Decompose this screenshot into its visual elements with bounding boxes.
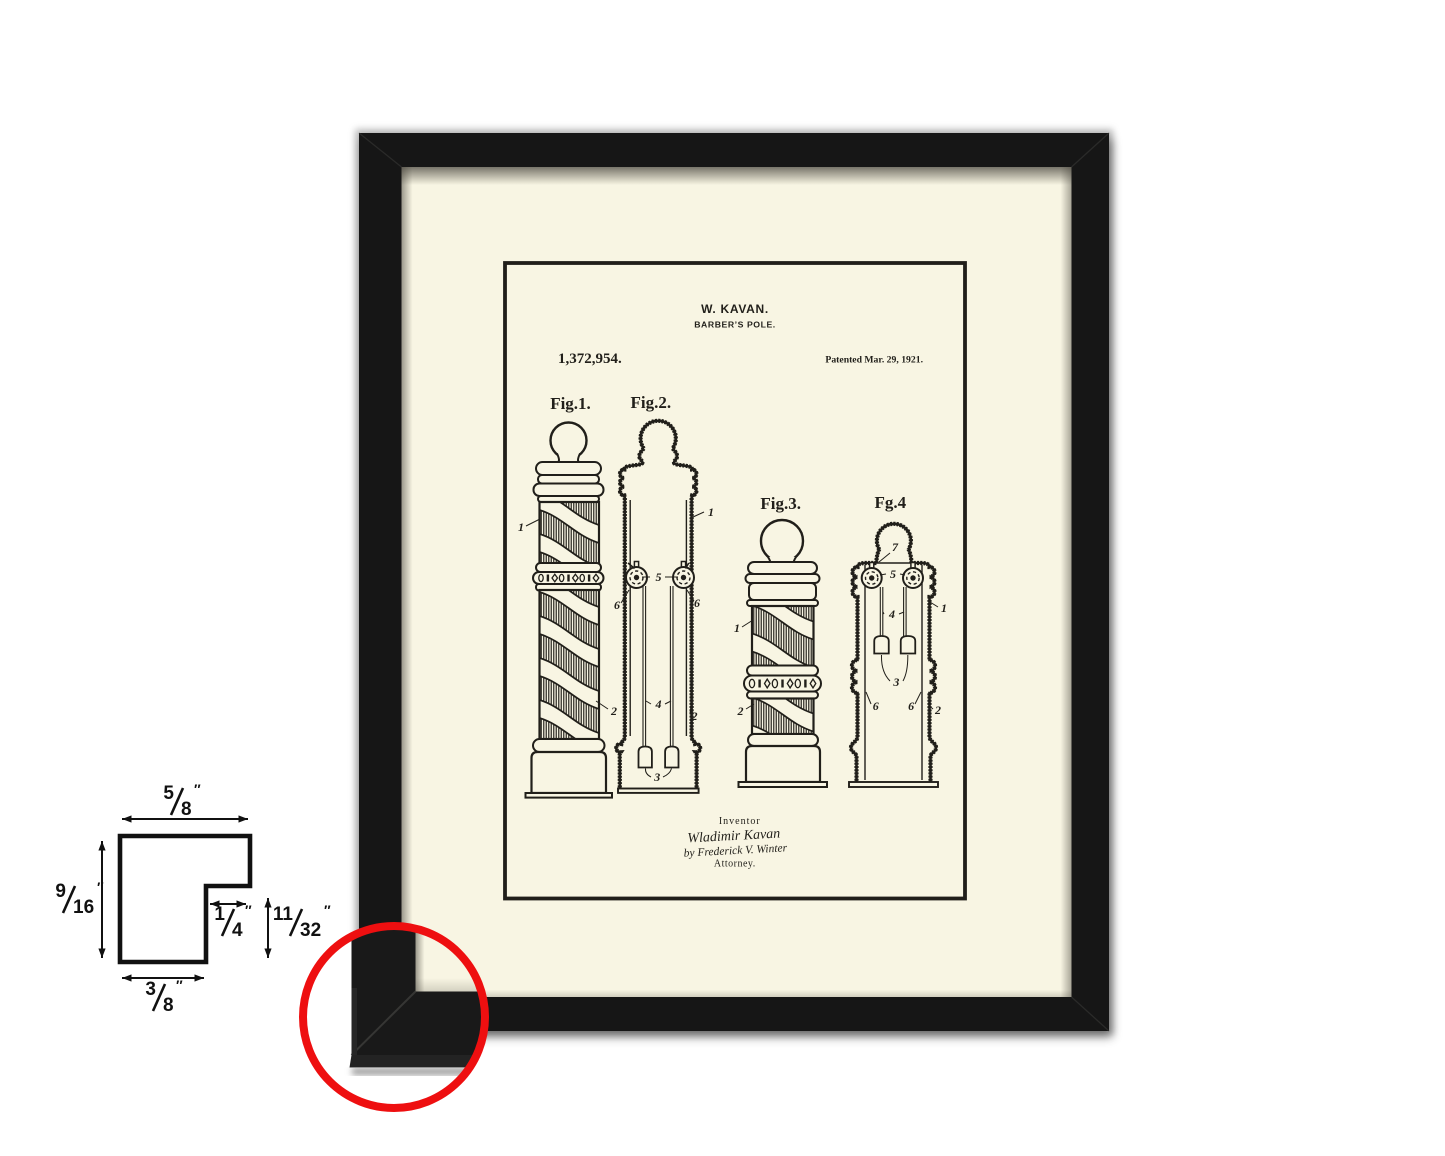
svg-text:″: ″: [324, 902, 331, 918]
svg-text:5: 5: [656, 570, 662, 584]
svg-text:″: ″: [176, 977, 183, 993]
svg-text:7: 7: [892, 540, 899, 554]
svg-text:3: 3: [653, 770, 660, 784]
svg-text:6: 6: [694, 596, 700, 610]
svg-text:32: 32: [300, 920, 321, 941]
svg-text:″: ″: [97, 879, 104, 895]
svg-text:8: 8: [163, 995, 174, 1016]
svg-text:Attorney.: Attorney.: [714, 859, 756, 870]
svg-text:1,372,954.: 1,372,954.: [558, 351, 622, 367]
svg-text:16: 16: [73, 897, 94, 918]
svg-text:2: 2: [934, 703, 941, 717]
svg-text:Inventor: Inventor: [719, 816, 761, 827]
svg-text:2: 2: [691, 709, 698, 723]
svg-text:5: 5: [163, 783, 174, 804]
svg-text:3: 3: [145, 979, 156, 1000]
svg-text:1: 1: [734, 621, 740, 635]
svg-text:Fg.4: Fg.4: [874, 493, 906, 512]
svg-text:1: 1: [941, 601, 947, 615]
svg-text:8: 8: [181, 799, 192, 820]
svg-text:6: 6: [908, 699, 914, 713]
svg-text:Fig.2.: Fig.2.: [630, 393, 671, 412]
svg-text:4: 4: [655, 697, 662, 711]
svg-text:4: 4: [888, 607, 895, 621]
svg-text:Fig.3.: Fig.3.: [760, 494, 801, 513]
svg-text:11: 11: [273, 904, 294, 925]
svg-text:″: ″: [245, 902, 252, 918]
svg-text:2: 2: [737, 704, 744, 718]
svg-text:2: 2: [610, 704, 617, 718]
svg-text:Fig.1.: Fig.1.: [550, 394, 591, 413]
svg-text:1: 1: [708, 505, 714, 519]
svg-text:BARBER’S POLE.: BARBER’S POLE.: [694, 320, 776, 330]
svg-text:5: 5: [890, 567, 896, 581]
svg-text:9: 9: [55, 881, 66, 902]
svg-text:6: 6: [873, 699, 879, 713]
svg-text:4: 4: [232, 920, 243, 941]
svg-text:1: 1: [214, 904, 225, 925]
svg-text:6: 6: [614, 598, 620, 612]
svg-text:″: ″: [194, 781, 201, 797]
svg-text:1: 1: [518, 520, 524, 534]
svg-text:3: 3: [892, 675, 899, 689]
svg-text:Patented Mar. 29, 1921.: Patented Mar. 29, 1921.: [825, 355, 923, 366]
svg-text:W. KAVAN.: W. KAVAN.: [701, 302, 769, 316]
